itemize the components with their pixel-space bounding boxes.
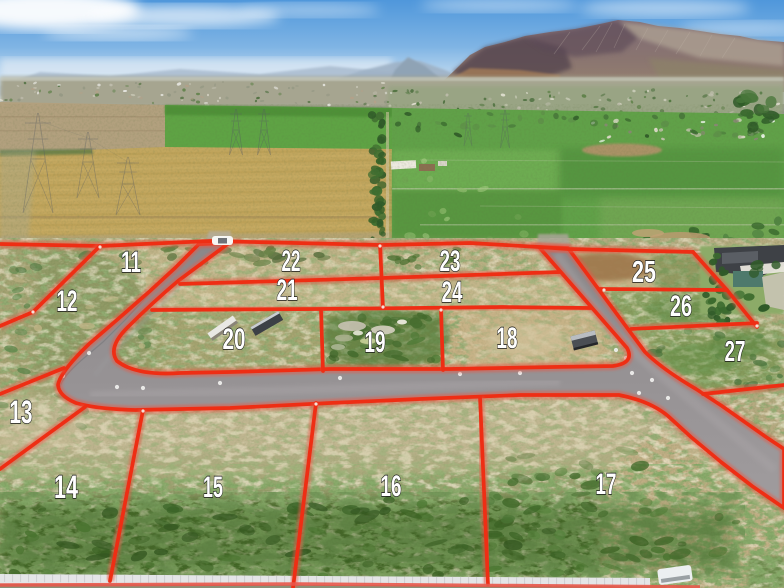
- svg-text:24: 24: [442, 276, 463, 309]
- svg-text:19: 19: [365, 326, 386, 359]
- svg-text:15: 15: [203, 471, 223, 504]
- svg-text:12: 12: [57, 285, 78, 318]
- svg-text:27: 27: [725, 336, 746, 368]
- svg-text:21: 21: [277, 274, 298, 307]
- svg-text:14: 14: [54, 469, 78, 505]
- svg-text:20: 20: [223, 323, 246, 356]
- svg-text:17: 17: [596, 468, 617, 501]
- svg-text:13: 13: [10, 394, 33, 430]
- svg-text:16: 16: [381, 470, 402, 503]
- svg-text:25: 25: [632, 254, 656, 289]
- svg-text:26: 26: [670, 290, 692, 323]
- svg-text:18: 18: [497, 322, 518, 355]
- svg-text:11: 11: [121, 246, 141, 279]
- svg-text:22: 22: [282, 245, 301, 278]
- svg-text:23: 23: [440, 245, 461, 278]
